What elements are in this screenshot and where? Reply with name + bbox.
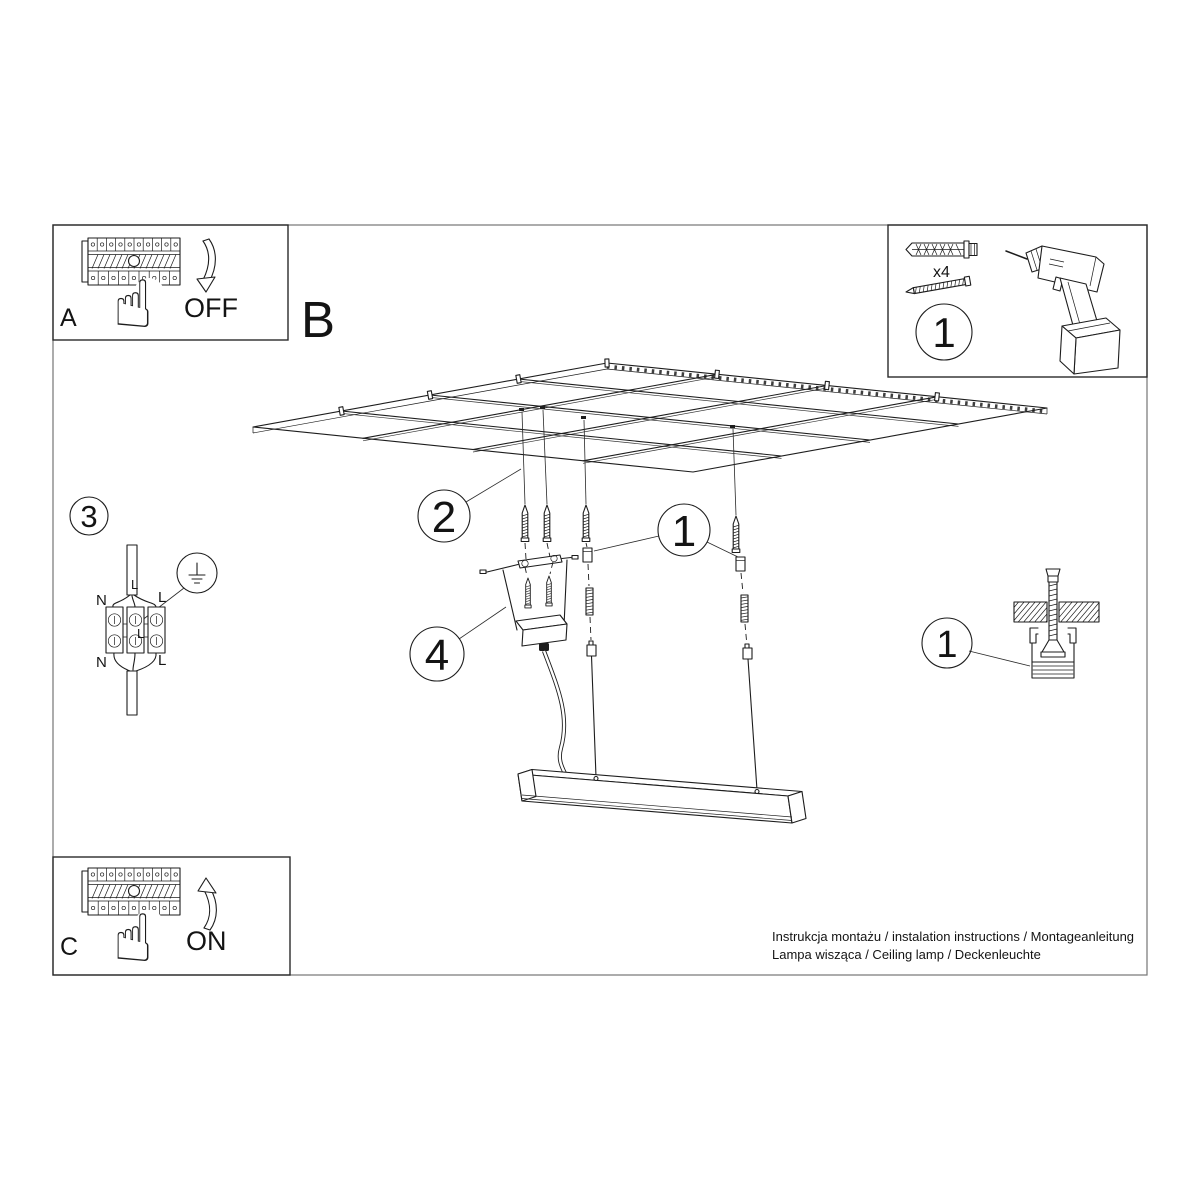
mounting-screws [519,406,740,559]
cable-gripper [583,548,592,562]
off-arrow-icon [197,239,215,292]
wall-plug-icon [906,241,977,258]
outer-frame [53,225,1147,975]
wire-label-bottom-left: N [96,654,107,671]
wire-anchor-knob [594,777,598,781]
cord-gland [539,643,549,651]
wires-top [113,595,156,607]
on-label: ON [186,926,227,956]
panel-c: ☝ ON C [53,857,290,977]
pointing-hand-icon: ☝ [113,266,153,343]
grid-joints [339,359,940,415]
cable-fitting [587,645,596,656]
ceiling-screw [582,505,590,542]
side-screw [480,565,518,574]
on-arrow-icon [198,878,216,930]
ceiling-screw [732,516,740,553]
ground-glyph [189,563,205,583]
footer-line1: Instrukcja montażu / instalation instruc… [772,929,1134,944]
ceiling-slab-left [1014,602,1047,622]
off-label: OFF [184,293,238,323]
suspension-wire [592,656,597,777]
wires-bottom [114,653,156,671]
threaded-stud [586,588,593,615]
panel-c-letter: C [60,933,78,961]
threaded-stud [741,595,748,622]
callout-ceiling-grid: 2 [418,469,521,542]
callout-suspension: 1 [594,504,738,557]
suspension-left [583,548,596,777]
wiring-diagram: 3 L N [70,497,217,715]
panel-a-letter: A [60,304,77,332]
footer: Instrukcja montażu / instalation instruc… [772,929,1134,962]
anchor-detail: 1 [922,569,1120,678]
ceiling-screw [543,505,551,542]
callout-2-number: 2 [432,493,456,542]
supply-cable-bottom [127,671,137,715]
drill-icon [1006,246,1120,374]
callout-1-number: 1 [672,507,696,556]
cable-gripper [736,557,745,571]
wiring-step-number: 3 [80,499,97,534]
cable-fitting [743,648,752,659]
wire-label-top-left: N [96,592,107,609]
footer-line2: Lampa wisząca / Ceiling lamp / Deckenleu… [772,947,1041,962]
canopy-screw [546,576,552,606]
ceiling-slab-right [1059,602,1099,622]
wire-label-cable-top: L [131,577,138,592]
panel-a: ☝ OFF A [53,225,288,343]
pointing-hand-icon: ☝ [113,900,153,977]
callout-detail-number: 1 [936,624,957,666]
callout-anchor-detail: 1 [922,618,1030,668]
callout-canopy: 4 [410,607,506,681]
instruction-sheet: ☝ OFF A B x4 1 [0,0,1200,1200]
wire-anchor-knob [755,790,759,794]
ceiling-screw [521,505,529,542]
ceiling-grid [253,359,1047,472]
terminal-blocks [106,607,165,653]
side-screw [562,556,578,560]
wire-label-center: L [137,626,144,641]
anchor-qty-label: x4 [933,264,950,281]
canopy-assembly [480,555,578,778]
tools-box: x4 1 [888,225,1147,377]
pendant-lamp [518,770,806,824]
wire-label-bottom-right: L [158,652,166,669]
suspension-right [736,557,757,790]
wire-label-top-right: L [158,589,166,606]
step-b-label: B [301,291,335,348]
canopy-screw [525,578,531,608]
callout-4-number: 4 [425,631,449,680]
tools-step-number: 1 [932,309,955,356]
suspension-wire [748,659,757,790]
